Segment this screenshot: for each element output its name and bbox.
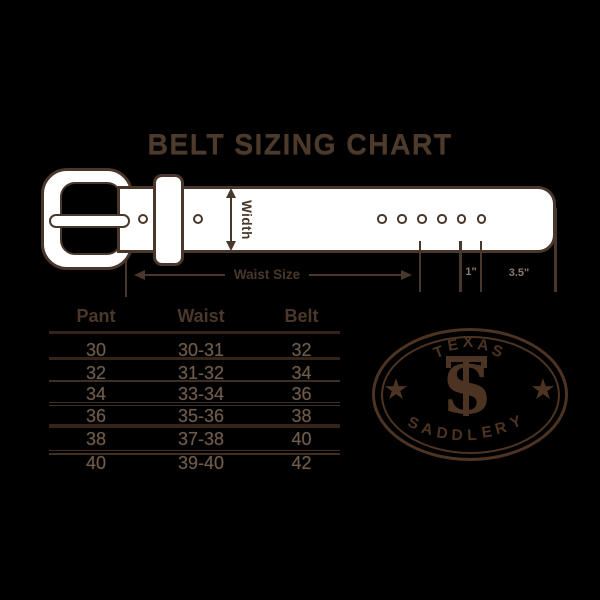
belt-size: 40 — [255, 429, 348, 451]
width-arrow-down-icon — [226, 241, 236, 251]
column-header-pant: Pant — [50, 305, 142, 327]
belt-hole — [377, 214, 387, 224]
width-arrow-line — [230, 197, 232, 242]
waist-size: 37-38 — [145, 429, 257, 451]
table-divider — [49, 357, 340, 360]
tip-length-label: 3.5" — [499, 267, 539, 279]
belt-size: 42 — [255, 452, 348, 474]
belt-hole — [193, 214, 203, 224]
table-divider — [49, 331, 340, 334]
waist-arrow-left-icon — [134, 270, 145, 280]
column-header-waist: Waist — [145, 305, 257, 327]
monogram-t-stem — [463, 356, 469, 416]
monogram-t-serif — [481, 356, 487, 368]
belt-hole — [417, 214, 427, 224]
table-divider — [49, 380, 340, 382]
star-icon: ★ — [376, 369, 416, 409]
belt-hole — [477, 214, 487, 224]
buckle-tick — [125, 258, 127, 297]
pant-size: 38 — [50, 429, 142, 451]
waist-size: 39-40 — [145, 452, 257, 474]
hole-tick — [419, 241, 421, 292]
waist-arrow-line-left — [145, 274, 225, 276]
belt-hole — [138, 214, 148, 224]
size-table: Pant Waist Belt 30 30-31 32 32 31-32 34 … — [50, 303, 348, 473]
table-header-row: Pant Waist Belt — [50, 305, 348, 327]
belt-sizing-chart: BELT SIZING CHART Width Waist Size — [0, 0, 600, 600]
page-title: BELT SIZING CHART — [0, 129, 600, 162]
waist-arrow-right-icon — [401, 270, 412, 280]
table-divider — [49, 402, 340, 404]
belt-keeper-loop — [153, 174, 184, 266]
table-row: 40 39-40 42 — [50, 452, 348, 474]
waist-arrow-line-right — [309, 274, 401, 276]
width-label: Width — [238, 180, 254, 260]
tip-tick — [554, 208, 556, 292]
hole-gap-label: 1" — [460, 266, 482, 278]
star-icon: ★ — [523, 369, 563, 409]
monogram-t-serif — [446, 356, 452, 368]
waist-size-label: Waist Size — [225, 266, 309, 284]
pant-size: 40 — [50, 452, 142, 474]
table-row: 38 37-38 40 — [50, 429, 348, 451]
belt-hole — [457, 214, 467, 224]
belt-hole — [397, 214, 407, 224]
buckle-prong — [49, 214, 130, 228]
table-divider — [49, 424, 340, 428]
belt-hole — [437, 214, 447, 224]
column-header-belt: Belt — [255, 305, 348, 327]
